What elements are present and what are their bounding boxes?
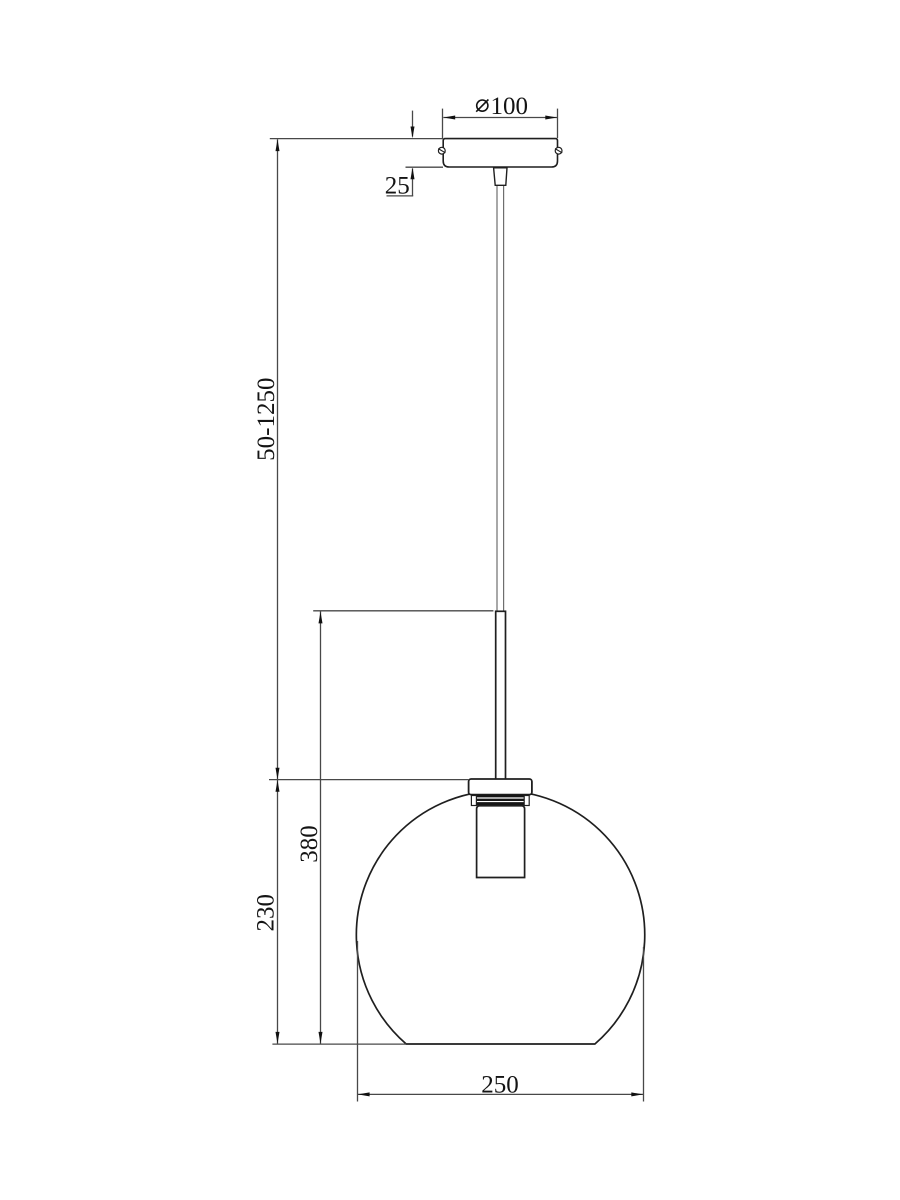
- svg-text:100: 100: [491, 93, 529, 120]
- svg-text:250: 250: [481, 1071, 519, 1098]
- svg-text:50-1250: 50-1250: [253, 378, 280, 461]
- svg-text:25: 25: [385, 173, 410, 200]
- svg-text:230: 230: [253, 894, 280, 932]
- svg-text:380: 380: [296, 825, 323, 863]
